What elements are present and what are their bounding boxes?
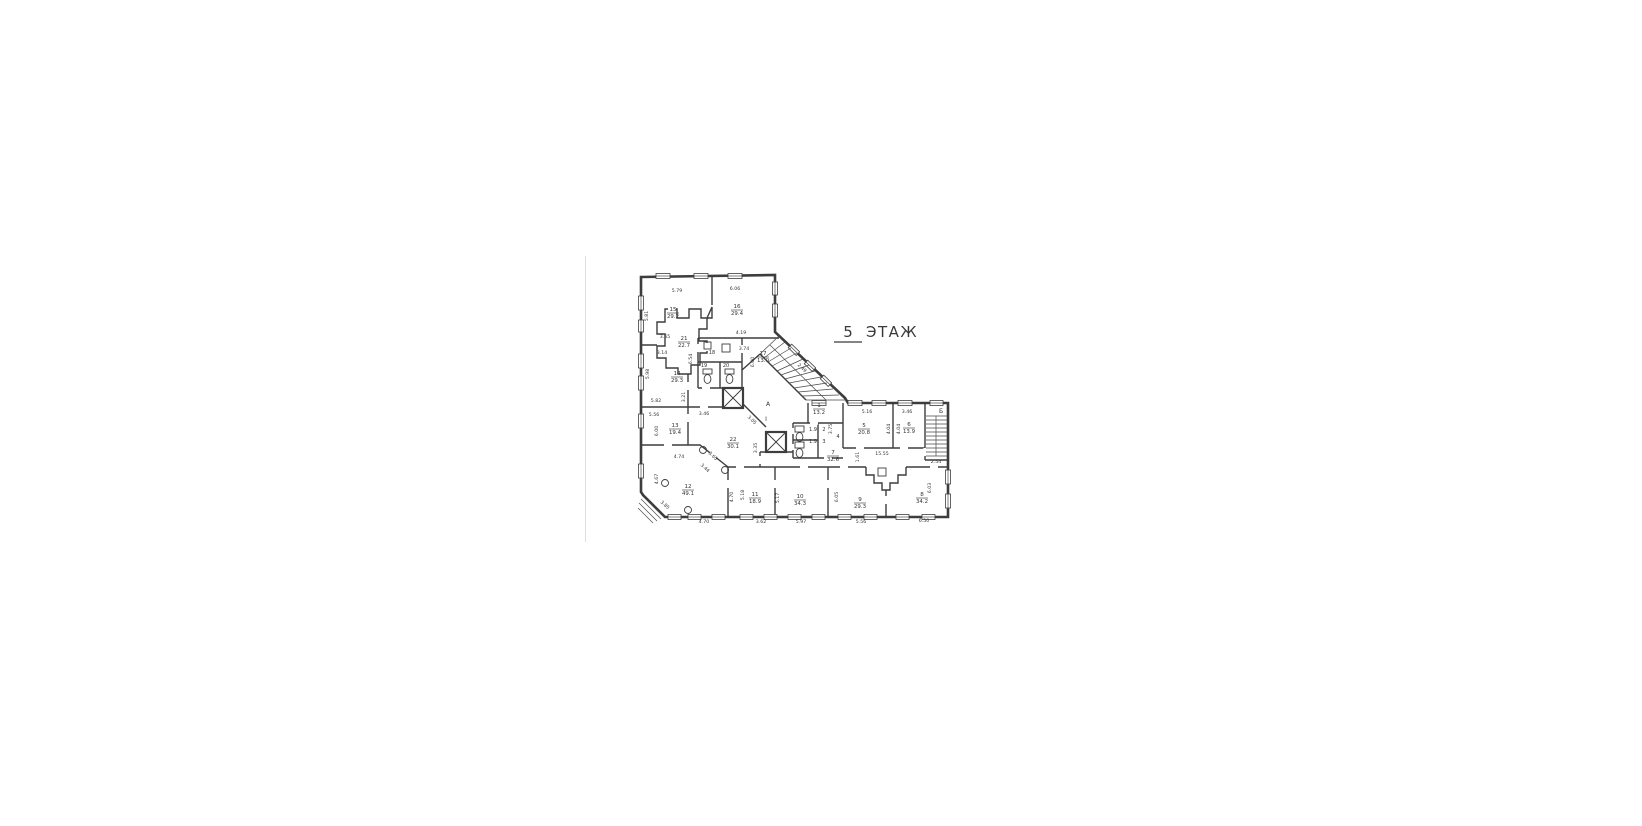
room-label-8: 834.2 [916, 492, 928, 505]
dim-label: 4.19 [736, 330, 746, 336]
room-label-9: 929.3 [854, 497, 866, 510]
room-label-2: 2 [822, 427, 825, 433]
svg-text:22.7: 22.7 [678, 343, 690, 349]
svg-text:16: 16 [733, 304, 741, 310]
svg-text:29.4: 29.4 [731, 311, 744, 317]
dim-label: 5.16 [862, 409, 872, 415]
dim-label: 3.46 [902, 409, 912, 415]
dim-label: 4.04 [886, 424, 892, 434]
elevator-shaft-1-icon [723, 388, 743, 408]
svg-text:18.9: 18.9 [749, 499, 762, 505]
room-area-2: 1.9 [809, 427, 817, 433]
room-label-3: 3 [822, 439, 825, 445]
svg-text:8: 8 [920, 492, 924, 498]
stairwell-b-label: Б [939, 408, 943, 415]
svg-text:13: 13 [671, 423, 679, 429]
svg-text:29.3: 29.3 [671, 378, 683, 384]
dim-label: 3.46 [699, 411, 709, 417]
dim-label: 3.65 [707, 450, 719, 462]
dim-label: 3.65 [660, 334, 670, 340]
dim-label: 5.56 [856, 519, 866, 525]
room-label-11: 1118.9 [749, 492, 762, 505]
room-label-12: 1249.1 [682, 484, 694, 497]
outer-walls [641, 275, 948, 517]
svg-text:5: 5 [862, 423, 866, 429]
room-label-19: 19 [701, 363, 707, 369]
dim-label: 5.97 [796, 519, 806, 525]
room-label-16: 1629.4 [731, 304, 744, 317]
room-area-3: 1.9 [809, 439, 817, 445]
svg-text:13.9: 13.9 [903, 429, 916, 435]
svg-text:21: 21 [680, 336, 688, 342]
svg-text:20.8: 20.8 [858, 430, 871, 436]
svg-text:14: 14 [673, 371, 681, 377]
window-icon [656, 274, 670, 279]
room-label-17: 1713.0 [757, 351, 770, 364]
svg-text:15: 15 [669, 307, 677, 313]
dim-label: 4.70 [699, 519, 709, 525]
dim-label: 6.54 [688, 354, 694, 364]
floor-word: ЭТАЖ [866, 323, 918, 341]
room-label-14: 1429.3 [671, 371, 683, 384]
svg-text:29.3: 29.3 [854, 504, 866, 510]
svg-text:49.1: 49.1 [682, 491, 694, 497]
svg-text:12: 12 [684, 484, 691, 490]
svg-text:30.1: 30.1 [727, 444, 739, 450]
svg-text:13.2: 13.2 [813, 410, 825, 416]
dim-label: 5.79 [672, 288, 682, 294]
dim-label: 6.06 [730, 286, 740, 292]
dim-label: 6.50 [919, 518, 929, 524]
svg-text:29.2: 29.2 [667, 314, 679, 320]
dim-label: 6.00 [750, 357, 756, 367]
room-label-21: 2122.7 [678, 336, 690, 349]
svg-text:32.6: 32.6 [827, 457, 840, 463]
floor-title: 5 ЭТАЖ [834, 323, 918, 342]
svg-text:7: 7 [831, 450, 835, 456]
room-label-20: 20 [723, 363, 729, 369]
dim-label: 3.44 [699, 462, 711, 474]
dim-label: 5.82 [651, 398, 661, 404]
interior-walls [641, 276, 948, 517]
room-label-18: 18 [709, 350, 715, 356]
room-label-6: 613.9 [903, 422, 916, 435]
dim-label: 15.55 [875, 451, 888, 457]
dim-label: 3.74 [739, 346, 749, 352]
svg-text:17: 17 [759, 351, 767, 357]
floor-number: 5 [843, 323, 853, 341]
dim-label: 5.98 [645, 369, 651, 379]
room-label-5: 520.8 [858, 423, 871, 436]
dim-label: 1.61 [855, 452, 861, 462]
dim-label: 2.54 [931, 459, 941, 465]
dim-label: 4.74 [674, 454, 684, 460]
dim-label: 4.70 [729, 492, 735, 502]
svg-text:22: 22 [729, 437, 736, 443]
dim-label: 6.03 [927, 483, 933, 493]
svg-text:9: 9 [858, 497, 862, 503]
room-label-22: 2230.1 [727, 437, 739, 450]
room-label-10: 1034.3 [794, 494, 806, 507]
stairwell-a-label: А [766, 401, 771, 408]
floor-plan-canvas: 1529.2 1629.4 2122.7 1429.3 1319.4 1249.… [0, 0, 1642, 826]
dim-label: 5.56 [649, 412, 659, 418]
svg-text:19.4: 19.4 [669, 430, 682, 436]
svg-text:6: 6 [907, 422, 911, 428]
dim-label: 3.21 [681, 392, 687, 402]
dim-label: 3.85 [659, 500, 671, 511]
svg-text:13.0: 13.0 [757, 358, 770, 364]
svg-text:34.3: 34.3 [794, 501, 806, 507]
stair-b [926, 416, 947, 456]
svg-text:34.2: 34.2 [916, 499, 928, 505]
dim-label: 6.00 [654, 426, 660, 436]
svg-text:1: 1 [817, 403, 821, 409]
stairwell-i-label: І [765, 416, 767, 423]
dim-label: 3.14 [657, 350, 667, 356]
dim-label: 3.62 [756, 519, 766, 525]
dim-label: 3.35 [753, 443, 759, 453]
dim-label: 5.17 [775, 493, 781, 503]
dim-label: 5.18 [740, 490, 746, 500]
dim-label: 4.67 [654, 474, 660, 484]
dim-label: 4.04 [896, 424, 902, 434]
dim-label: 6.05 [834, 492, 840, 502]
dim-label: 5.81 [644, 311, 650, 321]
elevator-shaft-2-icon [766, 432, 786, 452]
room-label-4: 4 [836, 434, 839, 440]
dim-label: 3.75 [828, 424, 834, 434]
svg-text:10: 10 [796, 494, 804, 500]
room-label-7: 732.6 [827, 450, 840, 463]
room-label-13: 1319.4 [669, 423, 682, 436]
svg-text:11: 11 [751, 492, 759, 498]
